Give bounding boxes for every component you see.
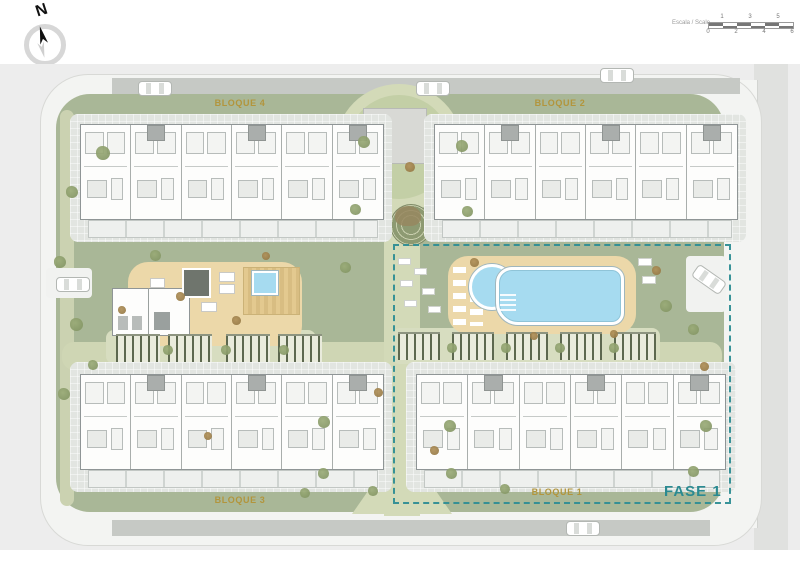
compass-ring	[24, 24, 66, 66]
deck-table	[150, 278, 165, 288]
car-icon	[56, 277, 90, 292]
page-footer	[0, 550, 800, 566]
apartment-unit	[182, 375, 232, 469]
bloque-2-label: BLOQUE 2	[505, 98, 615, 108]
shrub-icon	[204, 432, 212, 440]
shrub-icon	[118, 306, 126, 314]
apartment-unit	[586, 125, 636, 219]
bloque-4-balconies	[88, 220, 378, 238]
bloque-4-label: BLOQUE 4	[185, 98, 295, 108]
stair-core	[248, 375, 266, 391]
car-icon	[600, 68, 634, 83]
jacuzzi	[252, 271, 278, 295]
apartment-unit	[687, 125, 737, 219]
compass-north-label: N	[34, 1, 51, 22]
gym-equipment	[118, 316, 128, 330]
top-bar: N Escala / Scale 1 3 5 0 2 4 6	[0, 0, 800, 64]
shrub-icon	[176, 292, 185, 301]
car-icon	[138, 81, 172, 96]
stair-core	[147, 375, 165, 391]
tree-icon	[96, 146, 110, 160]
stair-core	[349, 375, 367, 391]
tree-icon	[368, 486, 378, 496]
carport-pergola	[116, 334, 160, 362]
compass-icon: N	[10, 2, 70, 64]
tree-icon	[318, 416, 330, 428]
scale-bar: Escala / Scale 1 3 5 0 2 4 6	[672, 12, 794, 36]
shrub-icon	[405, 162, 415, 172]
gym-equipment	[132, 316, 142, 330]
tree-icon	[150, 250, 161, 261]
tree-icon	[163, 345, 173, 355]
scale-tick: 3	[745, 14, 755, 20]
stair-core	[602, 125, 620, 141]
tree-icon	[456, 140, 468, 152]
stair-core	[703, 125, 721, 141]
gym-equipment	[154, 312, 170, 330]
deck-table	[219, 284, 235, 294]
scale-tick: 2	[731, 29, 741, 35]
tree-icon	[340, 262, 351, 273]
scale-tick: 0	[703, 29, 713, 35]
site-plan-canvas: N Escala / Scale 1 3 5 0 2 4 6	[0, 0, 800, 566]
scale-bar-bottom	[709, 26, 793, 29]
bloque-2-building	[434, 124, 738, 220]
bloque-3-label: BLOQUE 3	[185, 495, 295, 505]
bloque-4-building	[80, 124, 384, 220]
car-icon	[416, 81, 450, 96]
tree-icon	[58, 388, 70, 400]
scale-tick: 4	[759, 29, 769, 35]
apartment-unit	[485, 125, 535, 219]
tree-icon	[279, 345, 289, 355]
deck-table	[219, 272, 235, 282]
carport-pergola	[168, 334, 212, 362]
apartment-unit	[131, 375, 181, 469]
shrub-icon	[262, 252, 270, 260]
apartment-unit	[636, 125, 686, 219]
tree-icon	[70, 318, 83, 331]
tree-icon	[350, 204, 361, 215]
tree-icon	[66, 186, 78, 198]
deck-table	[201, 302, 217, 312]
tree-icon	[221, 345, 231, 355]
bloque-3-building	[80, 374, 384, 470]
tree-icon	[462, 206, 473, 217]
fase-1-boundary	[393, 244, 731, 504]
shrub-icon	[232, 316, 241, 325]
scale-tick: 1	[717, 14, 727, 20]
apartment-unit	[232, 125, 282, 219]
apartment-unit	[232, 375, 282, 469]
car-icon	[566, 521, 600, 536]
apartment-unit	[131, 125, 181, 219]
apartment-unit	[536, 125, 586, 219]
tree-icon	[318, 468, 329, 479]
apartment-unit	[182, 125, 232, 219]
scale-tick: 6	[787, 29, 797, 35]
stair-core	[501, 125, 519, 141]
bloque-1-label: BLOQUE 1	[502, 487, 612, 497]
carport-pergola	[226, 334, 270, 362]
apartment-unit	[81, 375, 131, 469]
scale-bar-graphic	[708, 22, 794, 29]
bloque-3-balconies	[88, 470, 378, 488]
scale-label: Escala / Scale	[672, 20, 710, 26]
shrub-icon	[374, 388, 383, 397]
tree-icon	[358, 136, 370, 148]
fase-1-label: FASE 1	[664, 483, 722, 500]
apartment-unit	[282, 125, 332, 219]
tree-icon	[300, 488, 310, 498]
bottom-road	[112, 520, 710, 536]
circular-garden-planting	[395, 206, 421, 226]
stair-core	[248, 125, 266, 141]
gym-wall	[148, 288, 149, 334]
tree-icon	[88, 360, 98, 370]
scale-tick: 5	[773, 14, 783, 20]
apartment-unit	[81, 125, 131, 219]
bloque-2-balconies	[442, 220, 732, 238]
tree-icon	[54, 256, 66, 268]
stair-core	[147, 125, 165, 141]
shade-pergola	[182, 268, 211, 298]
